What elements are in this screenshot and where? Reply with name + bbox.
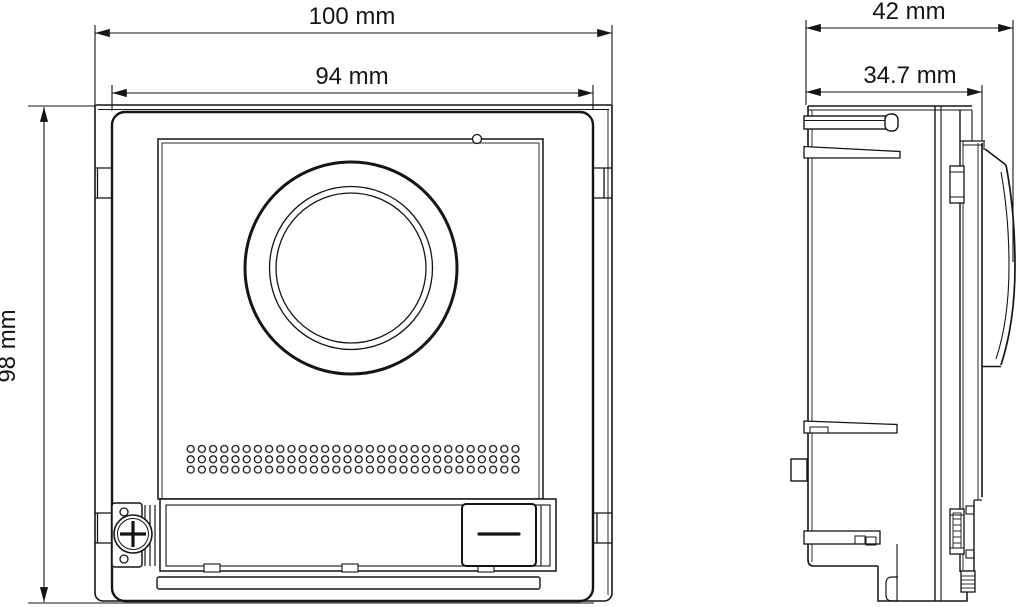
drawing-canvas: 100 mm 94 mm 98 mm 42 mm 34.7 mm — [0, 0, 1022, 607]
dim-label-overall-height: 98 mm — [0, 309, 21, 382]
front-view — [95, 105, 612, 601]
dim-label-overall-width: 100 mm — [309, 3, 396, 30]
mounting-tabs — [804, 114, 900, 545]
speaker-hole-grid — [186, 444, 522, 475]
dimension-drawing: 100 mm 94 mm 98 mm 42 mm 34.7 mm — [0, 0, 1022, 607]
dim-label-body-depth: 34.7 mm — [863, 62, 956, 89]
latch-clips — [950, 166, 974, 558]
bottom-plate — [157, 577, 540, 589]
plate-hole-bottom — [120, 555, 128, 563]
side-release-tab — [791, 459, 807, 481]
dim-label-panel-width: 94 mm — [315, 63, 388, 90]
dim-label-overall-depth: 42 mm — [872, 0, 945, 25]
module-body — [808, 106, 972, 601]
side-view — [791, 106, 1015, 601]
indicator-hole — [473, 135, 482, 144]
plate-hole-top — [120, 508, 128, 516]
call-button — [462, 504, 536, 566]
camera-dome-lens — [982, 149, 1015, 367]
phillips-screw — [114, 515, 152, 553]
